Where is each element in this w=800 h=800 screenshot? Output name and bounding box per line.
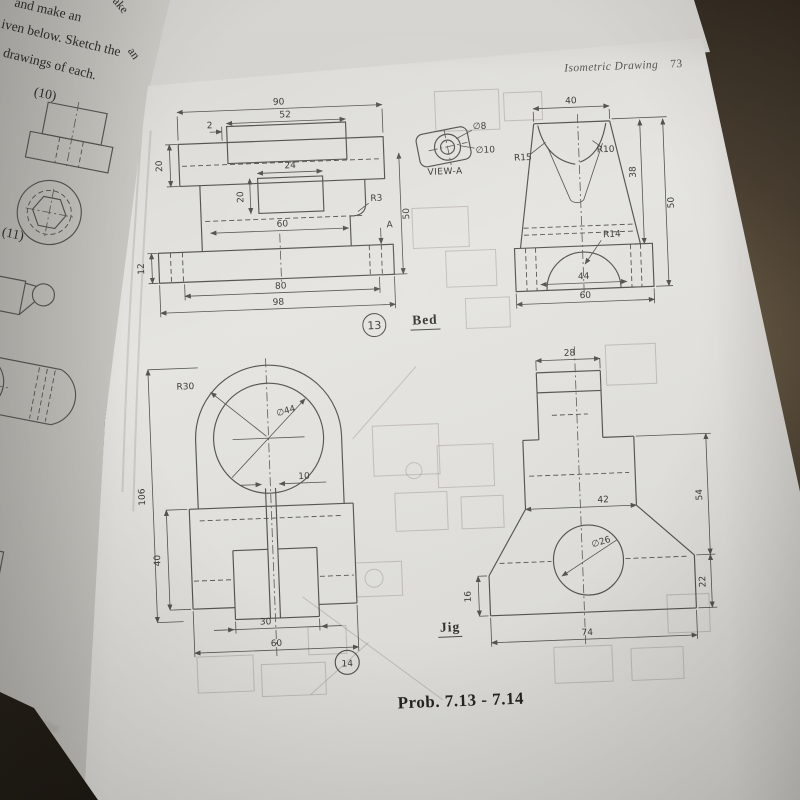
fig13-view-a-detail: ∅8 ∅10 VIEW-A xyxy=(414,121,496,178)
left-fig-10-front-view xyxy=(25,94,120,177)
dim-r30-label: R30 xyxy=(176,382,194,393)
fig13-front-view: 90 52 2 20 24 20 R3 60 xyxy=(131,93,416,318)
dim-20-hole-label: 20 xyxy=(236,191,246,203)
dim-30-label: 30 xyxy=(260,617,272,627)
dim-50-label: 50 xyxy=(402,208,412,220)
dim-r14-label: R14 xyxy=(603,230,621,241)
fig13-title: Bed xyxy=(410,312,440,331)
dim-r15-label: R15 xyxy=(514,153,532,164)
dim-16-label: 16 xyxy=(464,590,474,602)
dim-44-label: 44 xyxy=(578,272,590,282)
fig14-jig-view: 28 42 54 22 16 ∅26 xyxy=(454,341,718,648)
dim-98-label: 98 xyxy=(272,298,284,308)
dim-24-label: 24 xyxy=(284,161,296,171)
dim-54-label: 54 xyxy=(695,489,705,501)
fig14-number: 14 xyxy=(341,659,353,669)
dim-74-label: 74 xyxy=(581,628,593,638)
dim-40-support-label: 40 xyxy=(153,554,163,566)
dim-60-support-label: 60 xyxy=(271,639,283,649)
left-fig-11-view xyxy=(0,268,56,320)
dim-40-label: 40 xyxy=(565,96,577,106)
fig13-number: 13 xyxy=(367,318,381,332)
fig14-title: Jig xyxy=(438,619,463,638)
left-fig-stepped-block-view xyxy=(0,533,8,600)
fig13-side-view: 40 R15 R10 R14 44 60 38 xyxy=(509,92,681,308)
left-fig-link-view xyxy=(0,342,82,434)
dim-10-label: 10 xyxy=(298,472,310,482)
dim-60-side-label: 60 xyxy=(579,291,591,301)
dim-2-label: 2 xyxy=(207,121,213,131)
dim-20-slab-label: 20 xyxy=(155,160,165,172)
dim-d8-label: ∅8 xyxy=(473,122,487,133)
dim-22-label: 22 xyxy=(698,576,708,588)
dim-r10-label: R10 xyxy=(597,145,615,156)
view-a-label: VIEW-A xyxy=(427,167,463,178)
dim-38-label: 38 xyxy=(628,166,638,178)
dim-106-label: 106 xyxy=(137,488,148,506)
dim-d26-label: ∅26 xyxy=(591,535,613,550)
dim-90-label: 90 xyxy=(273,97,285,107)
dim-d10-label: ∅10 xyxy=(476,145,496,156)
fig14-support-view: R30 ∅44 106 10 40 30 xyxy=(133,355,360,682)
dim-r3-label: R3 xyxy=(370,194,382,204)
view-direction-arrow-label: A xyxy=(386,220,393,230)
book-photo: and make an iven below. Sketch the drawi… xyxy=(0,0,800,800)
dim-28-label: 28 xyxy=(564,348,576,358)
dim-60-label: 60 xyxy=(276,219,288,229)
dim-42-label: 42 xyxy=(597,495,609,505)
dim-50-side-label: 50 xyxy=(667,196,677,208)
dim-52-label: 52 xyxy=(279,110,291,120)
dim-d44-label: ∅44 xyxy=(275,404,297,419)
dim-80-label: 80 xyxy=(275,281,287,291)
dim-12-label: 12 xyxy=(137,263,147,275)
